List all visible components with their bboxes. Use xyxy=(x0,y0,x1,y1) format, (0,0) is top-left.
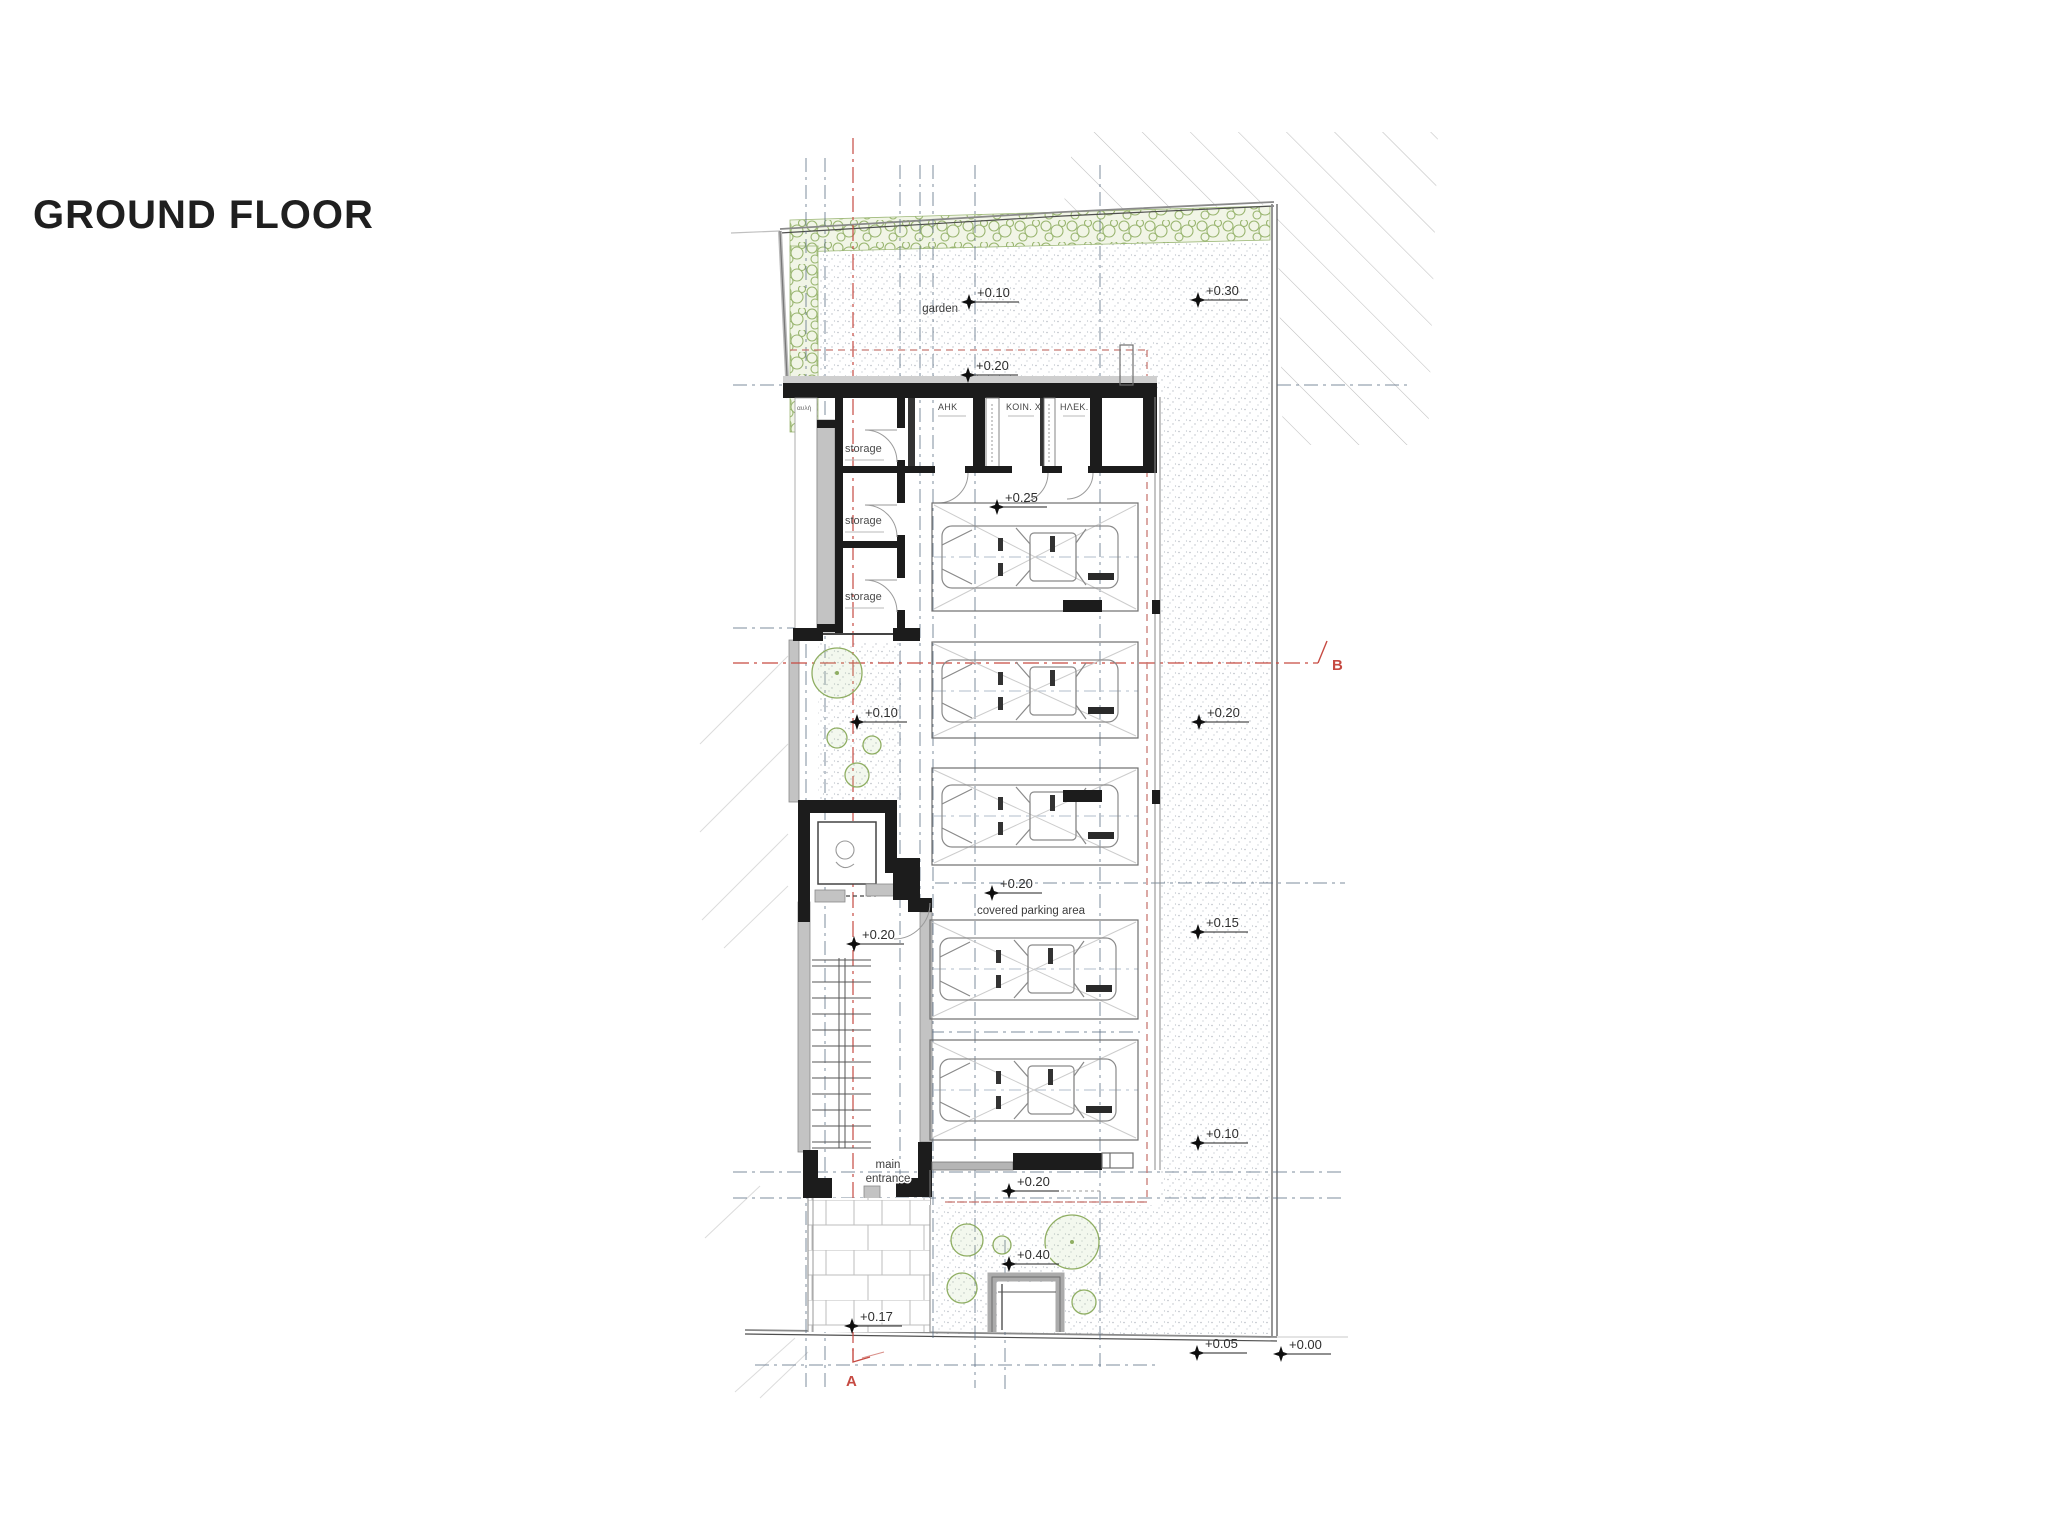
stairwell: main entrance xyxy=(798,898,932,1200)
elevator xyxy=(798,800,920,902)
svg-text:+0.10: +0.10 xyxy=(865,705,898,720)
svg-text:+0.20: +0.20 xyxy=(1207,705,1240,720)
gate-structure xyxy=(992,1277,1060,1332)
storage-3-label: storage xyxy=(845,591,882,603)
stairs xyxy=(812,958,871,1148)
boundary-wall-strip xyxy=(817,420,835,632)
column xyxy=(1063,790,1102,802)
elevation-street-2: +0.00 xyxy=(1273,1337,1331,1362)
elevation-entrance-court: +0.20 xyxy=(1001,1174,1101,1199)
main-entrance-label-2: entrance xyxy=(866,1173,911,1185)
section-label-a: A xyxy=(846,1373,857,1390)
stall-boxes xyxy=(930,503,1138,1140)
canopy-edge xyxy=(1152,397,1160,1170)
room-hlek-label: HΛEK. xyxy=(1060,402,1089,412)
svg-text:+0.30: +0.30 xyxy=(1206,283,1239,298)
elevation-stair-hall: +0.20 xyxy=(846,927,904,952)
page-title: GROUND FLOOR xyxy=(33,193,374,237)
main-entrance-label-1: main xyxy=(876,1159,901,1171)
svg-text:+0.20: +0.20 xyxy=(1000,876,1033,891)
section-label-b: B xyxy=(1332,657,1343,674)
svg-text:+0.05: +0.05 xyxy=(1205,1336,1238,1351)
room-koin-label: KOIN. X xyxy=(1006,402,1041,412)
svg-text:+0.40: +0.40 xyxy=(1017,1247,1050,1262)
elevation-parking: +0.20 xyxy=(984,876,1042,901)
storage-2-label: storage xyxy=(845,515,882,527)
lightwell-label: αυλή xyxy=(797,405,812,412)
svg-text:+0.20: +0.20 xyxy=(862,927,895,942)
covered-parking-label: covered parking area xyxy=(977,905,1086,917)
svg-text:+0.20: +0.20 xyxy=(1017,1174,1050,1189)
column xyxy=(1063,600,1102,612)
room-ahk-label: AHK xyxy=(938,402,957,412)
svg-text:+0.17: +0.17 xyxy=(860,1309,893,1324)
svg-text:+0.10: +0.10 xyxy=(1206,1126,1239,1141)
ground-floor-plan: GROUND FLOOR xyxy=(0,0,2048,1536)
svg-text:+0.15: +0.15 xyxy=(1206,915,1239,930)
storage-1-label: storage xyxy=(845,443,882,455)
garden-label: garden xyxy=(922,303,958,315)
stall-diagonals xyxy=(932,505,1136,1138)
svg-text:+0.25: +0.25 xyxy=(1005,490,1038,505)
svg-text:+0.20: +0.20 xyxy=(976,358,1009,373)
svg-text:+0.00: +0.00 xyxy=(1289,1337,1322,1352)
parking xyxy=(930,503,1138,1205)
svg-text:+0.10: +0.10 xyxy=(977,285,1010,300)
